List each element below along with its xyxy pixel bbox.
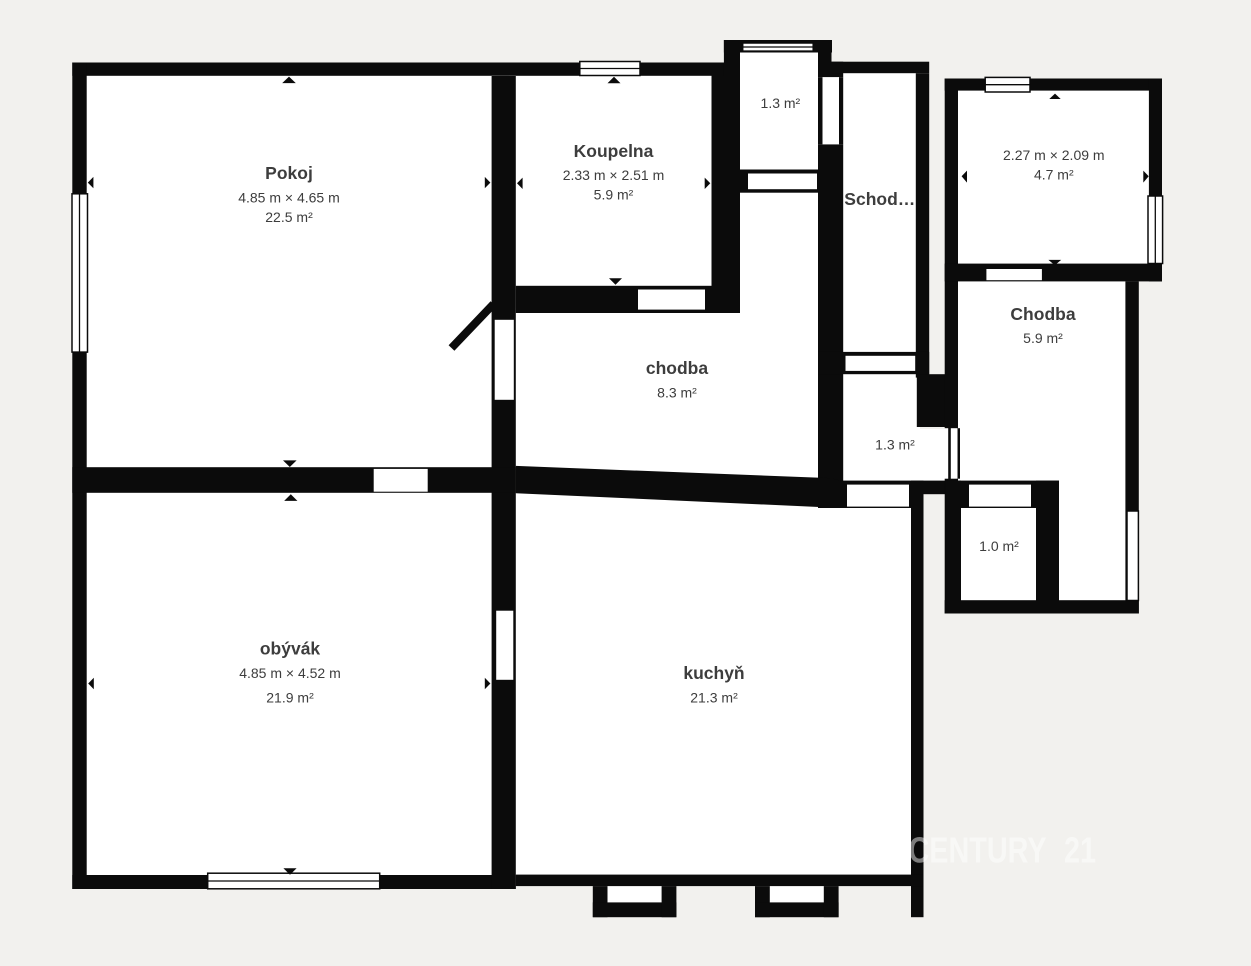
svg-text:4.7 m²: 4.7 m² <box>1034 166 1074 182</box>
svg-text:CENTURY: CENTURY <box>909 829 1047 870</box>
svg-text:8.3 m²: 8.3 m² <box>657 385 697 401</box>
svg-text:2.27 m × 2.09 m: 2.27 m × 2.09 m <box>1003 147 1105 163</box>
svg-text:5.9 m²: 5.9 m² <box>594 187 634 203</box>
svg-text:21: 21 <box>1064 829 1096 870</box>
svg-text:21.3 m²: 21.3 m² <box>690 690 738 706</box>
svg-text:Koupelna: Koupelna <box>574 141 654 161</box>
svg-text:kuchyň: kuchyň <box>683 663 744 683</box>
svg-text:1.3 m²: 1.3 m² <box>875 437 915 453</box>
svg-text:Pokoj: Pokoj <box>265 163 313 183</box>
svg-text:1.3 m²: 1.3 m² <box>761 95 801 111</box>
svg-text:Schod…: Schod… <box>844 189 915 209</box>
svg-text:Chodba: Chodba <box>1010 304 1075 324</box>
svg-text:21.9 m²: 21.9 m² <box>266 690 314 706</box>
svg-text:2.33 m × 2.51 m: 2.33 m × 2.51 m <box>563 167 665 183</box>
svg-text:5.9 m²: 5.9 m² <box>1023 330 1063 346</box>
svg-text:1.0 m²: 1.0 m² <box>979 538 1019 554</box>
svg-text:chodba: chodba <box>646 358 708 378</box>
svg-text:4.85 m × 4.52 m: 4.85 m × 4.52 m <box>239 665 341 681</box>
svg-text:obývák: obývák <box>260 639 321 659</box>
svg-text:4.85 m × 4.65 m: 4.85 m × 4.65 m <box>238 189 340 205</box>
svg-text:22.5 m²: 22.5 m² <box>265 209 313 225</box>
